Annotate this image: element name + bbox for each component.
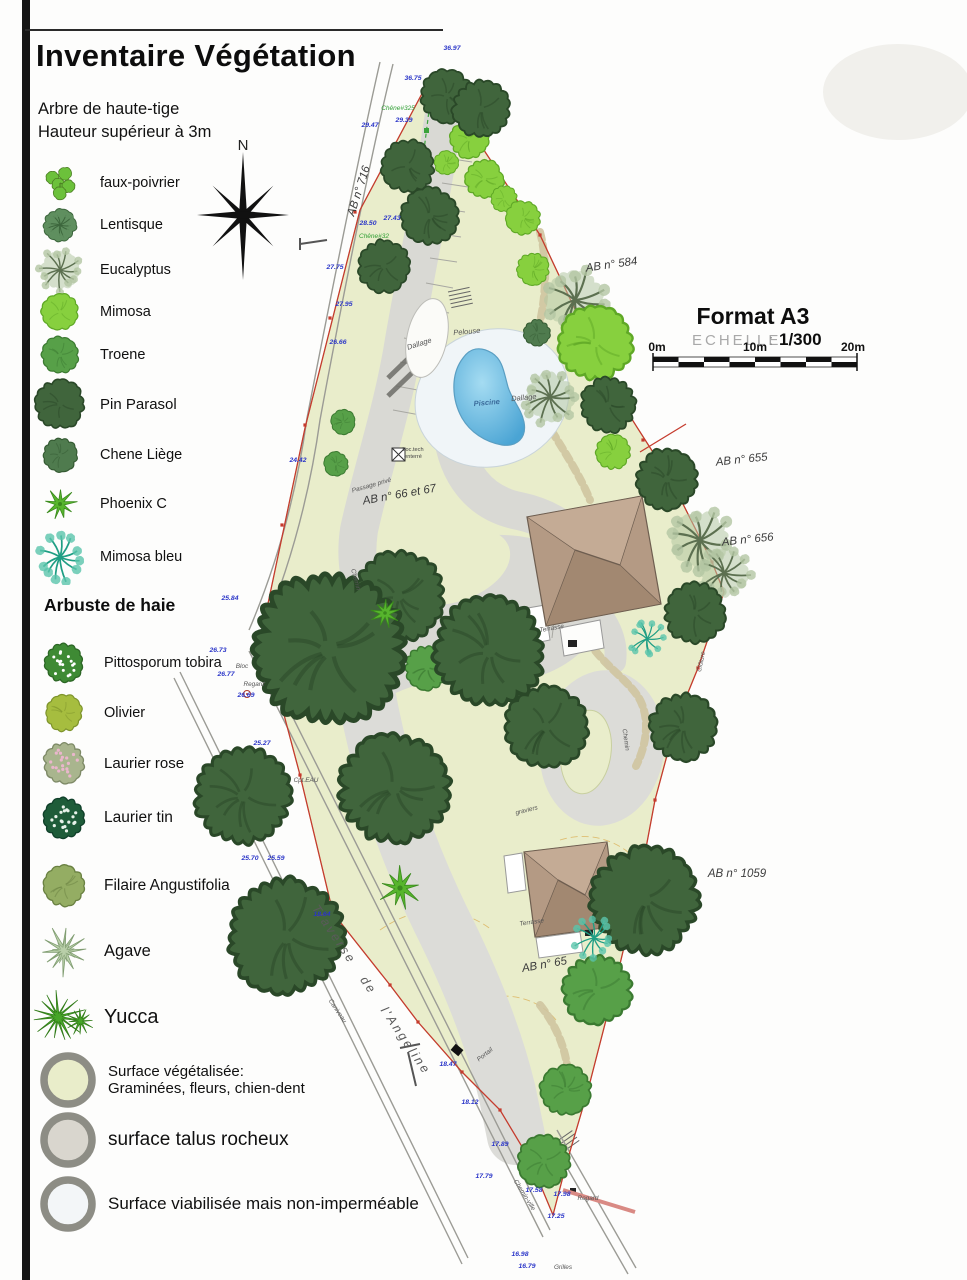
tree-pin-parasol: [381, 139, 435, 192]
elevation-value: 26.69: [236, 692, 254, 699]
scale-bar: 0m 10m 20m: [648, 340, 865, 371]
elevation-value: 18.12: [461, 1099, 478, 1106]
sheet: PelouseDallageDallagePiscineTerrasseTerr…: [0, 0, 967, 1280]
legend-label: Lentisque: [100, 217, 163, 233]
scale-tick-0: 0m: [648, 340, 665, 354]
scale-tick-10: 10m: [743, 340, 767, 354]
legend-item-laurier-tin: Laurier tin: [32, 790, 173, 846]
north-label: N: [238, 137, 249, 154]
tree-pin-parasol: [252, 574, 405, 723]
legend-label: Agave: [104, 942, 151, 961]
legend-label: surface talus rocheux: [108, 1129, 289, 1151]
plan-label: Regard: [244, 681, 265, 688]
elevation-value: 27.95: [334, 301, 352, 308]
legend-section-trees-line2: Hauteur supérieur à 3m: [38, 123, 211, 142]
elevation-value: 36.97: [443, 45, 461, 52]
scale-tick-20: 20m: [841, 340, 865, 354]
legend-label: Surface viabilisée mais non-imperméable: [108, 1194, 419, 1214]
plan-label: Loc.tech: [402, 447, 423, 453]
tree-chene-liege: [523, 319, 550, 346]
legend-item-troene: Troene: [28, 327, 145, 383]
filaire-angustifolia-icon: [32, 858, 96, 914]
chene-li-ge-icon: [28, 427, 92, 483]
legend-label: Laurier tin: [104, 809, 173, 827]
legend-section-trees-line1: Arbre de haute-tige: [38, 100, 179, 119]
scale-value: 1/300: [779, 330, 822, 349]
legend-item-olivier: Olivier: [32, 685, 145, 741]
legend-item-laurier-rose: Laurier rose: [32, 735, 184, 791]
legend-item-chene-li-ge: Chene Liège: [28, 427, 182, 483]
elevation-value: 25.59: [266, 855, 284, 862]
legend-section-shrubs: Arbuste de haie: [44, 595, 175, 616]
legend-item-surface-talus-rocheux: surface talus rocheux: [36, 1112, 289, 1168]
format-label: Format A3: [697, 303, 810, 329]
parcel-label: AB n° 1059: [707, 868, 767, 880]
elevation-value: 26.66: [328, 339, 346, 346]
legend-label: Olivier: [104, 705, 145, 721]
elevation-value: 29.39: [394, 117, 412, 124]
north-compass: N: [182, 137, 304, 280]
tree-pin-parasol: [664, 581, 725, 644]
legend-item-surface-v-g-talis-e: Surface végétalisée:Graminées, fleurs, c…: [36, 1052, 305, 1108]
elevation-value: 25.70: [240, 855, 258, 862]
olivier-icon: [32, 685, 96, 741]
legend-label: Troene: [100, 347, 145, 363]
elevation-value: 17.89: [491, 1141, 508, 1148]
legend-item-mimosa-bleu: Mimosa bleu: [28, 529, 182, 585]
elevation-value: 25.84: [220, 595, 238, 602]
legend-label: Pittosporum tobira: [104, 655, 222, 671]
elevation-value: 27.43: [382, 215, 400, 222]
plan-label: Chêne#32: [359, 233, 389, 240]
elevation-value: 24.42: [288, 457, 306, 464]
elevation-value: 29.47: [360, 122, 379, 129]
elevation-value: 36.75: [404, 75, 421, 82]
elevation-value: 18.64: [313, 911, 330, 918]
laurier-tin-icon: [32, 790, 96, 846]
scale-word: ECHELLE: [692, 332, 781, 349]
plan-label: Cpt.EAU: [294, 777, 319, 784]
agave-icon: [32, 923, 96, 979]
legend-item-surface-viabilis-e-mais-non-imperm-able: Surface viabilisée mais non-imperméable: [36, 1176, 419, 1232]
pin-parasol-icon: [28, 376, 92, 432]
troene-icon: [28, 327, 92, 383]
surface-v-g-talis-e-icon: [36, 1052, 100, 1108]
plan-label: enterré: [404, 454, 422, 460]
legend-label: Mimosa: [100, 304, 151, 320]
tree-pin-parasol: [194, 747, 292, 846]
legend-item-filaire-angustifolia: Filaire Angustifolia: [32, 858, 230, 914]
laurier-rose-icon: [32, 735, 96, 791]
legend-label: Filaire Angustifolia: [104, 877, 230, 895]
legend-label: faux-poivrier: [100, 175, 180, 191]
yucca-icon: [32, 989, 96, 1045]
tree-mimosa: [558, 306, 634, 380]
elevation-value: 17.98: [553, 1191, 570, 1198]
surface-viabilis-e-mais-non-imperm-able-icon: [36, 1176, 100, 1232]
legend-item-pin-parasol: Pin Parasol: [28, 376, 177, 432]
legend-label: Eucalyptus: [100, 262, 171, 278]
parcel-label: AB n° 584: [584, 255, 638, 274]
mimosa-bleu-icon: [28, 529, 92, 585]
parcel-label: AB n° 656: [720, 531, 774, 549]
legend-label: Chene Liège: [100, 447, 182, 463]
legend-label: Mimosa bleu: [100, 549, 182, 565]
elevation-value: 25.27: [252, 740, 271, 747]
legend-label: Pin Parasol: [100, 396, 177, 413]
scan-smudge: [823, 44, 967, 140]
elevation-value: 17.79: [475, 1173, 492, 1180]
elevation-value: 27.75: [325, 264, 343, 271]
plan-label: Bloc: [236, 663, 249, 670]
plan-label: Regard: [578, 1195, 599, 1202]
parcel-label: AB n° 655: [714, 451, 768, 469]
legend-label: Surface végétalisée:Graminées, fleurs, c…: [108, 1063, 305, 1097]
elevation-value: 28.50: [358, 220, 376, 227]
legend-item-pittosporum-tobira: Pittosporum tobira: [32, 635, 222, 691]
top-border-line: [25, 29, 443, 31]
elevation-value: 16.79: [518, 1263, 535, 1270]
pittosporum-tobira-icon: [32, 635, 96, 691]
legend-label: Laurier rose: [104, 755, 184, 772]
legend-label: Phoenix C: [100, 496, 167, 512]
plan-label: Chêne#325: [381, 105, 415, 112]
scale-separator: :: [769, 332, 773, 349]
phoenix-c-icon: [28, 476, 92, 532]
elevation-value: 18.47: [439, 1061, 457, 1068]
legend-label: Yucca: [104, 1006, 158, 1029]
legend-item-agave: Agave: [32, 923, 151, 979]
plan-label: Grilles: [554, 1264, 573, 1271]
tree-mimosa: [506, 201, 541, 235]
elevation-value: 16.98: [511, 1251, 528, 1258]
plan-label: Caniveau: [327, 998, 348, 1025]
surface-talus-rocheux-icon: [36, 1112, 100, 1168]
legend-item-phoenix-c: Phoenix C: [28, 476, 167, 532]
page-title: Inventaire Végétation: [36, 38, 356, 74]
elevation-value: 17.25: [547, 1213, 564, 1220]
elevation-value: 17.58: [525, 1187, 542, 1194]
legend-item-yucca: Yucca: [32, 989, 158, 1045]
